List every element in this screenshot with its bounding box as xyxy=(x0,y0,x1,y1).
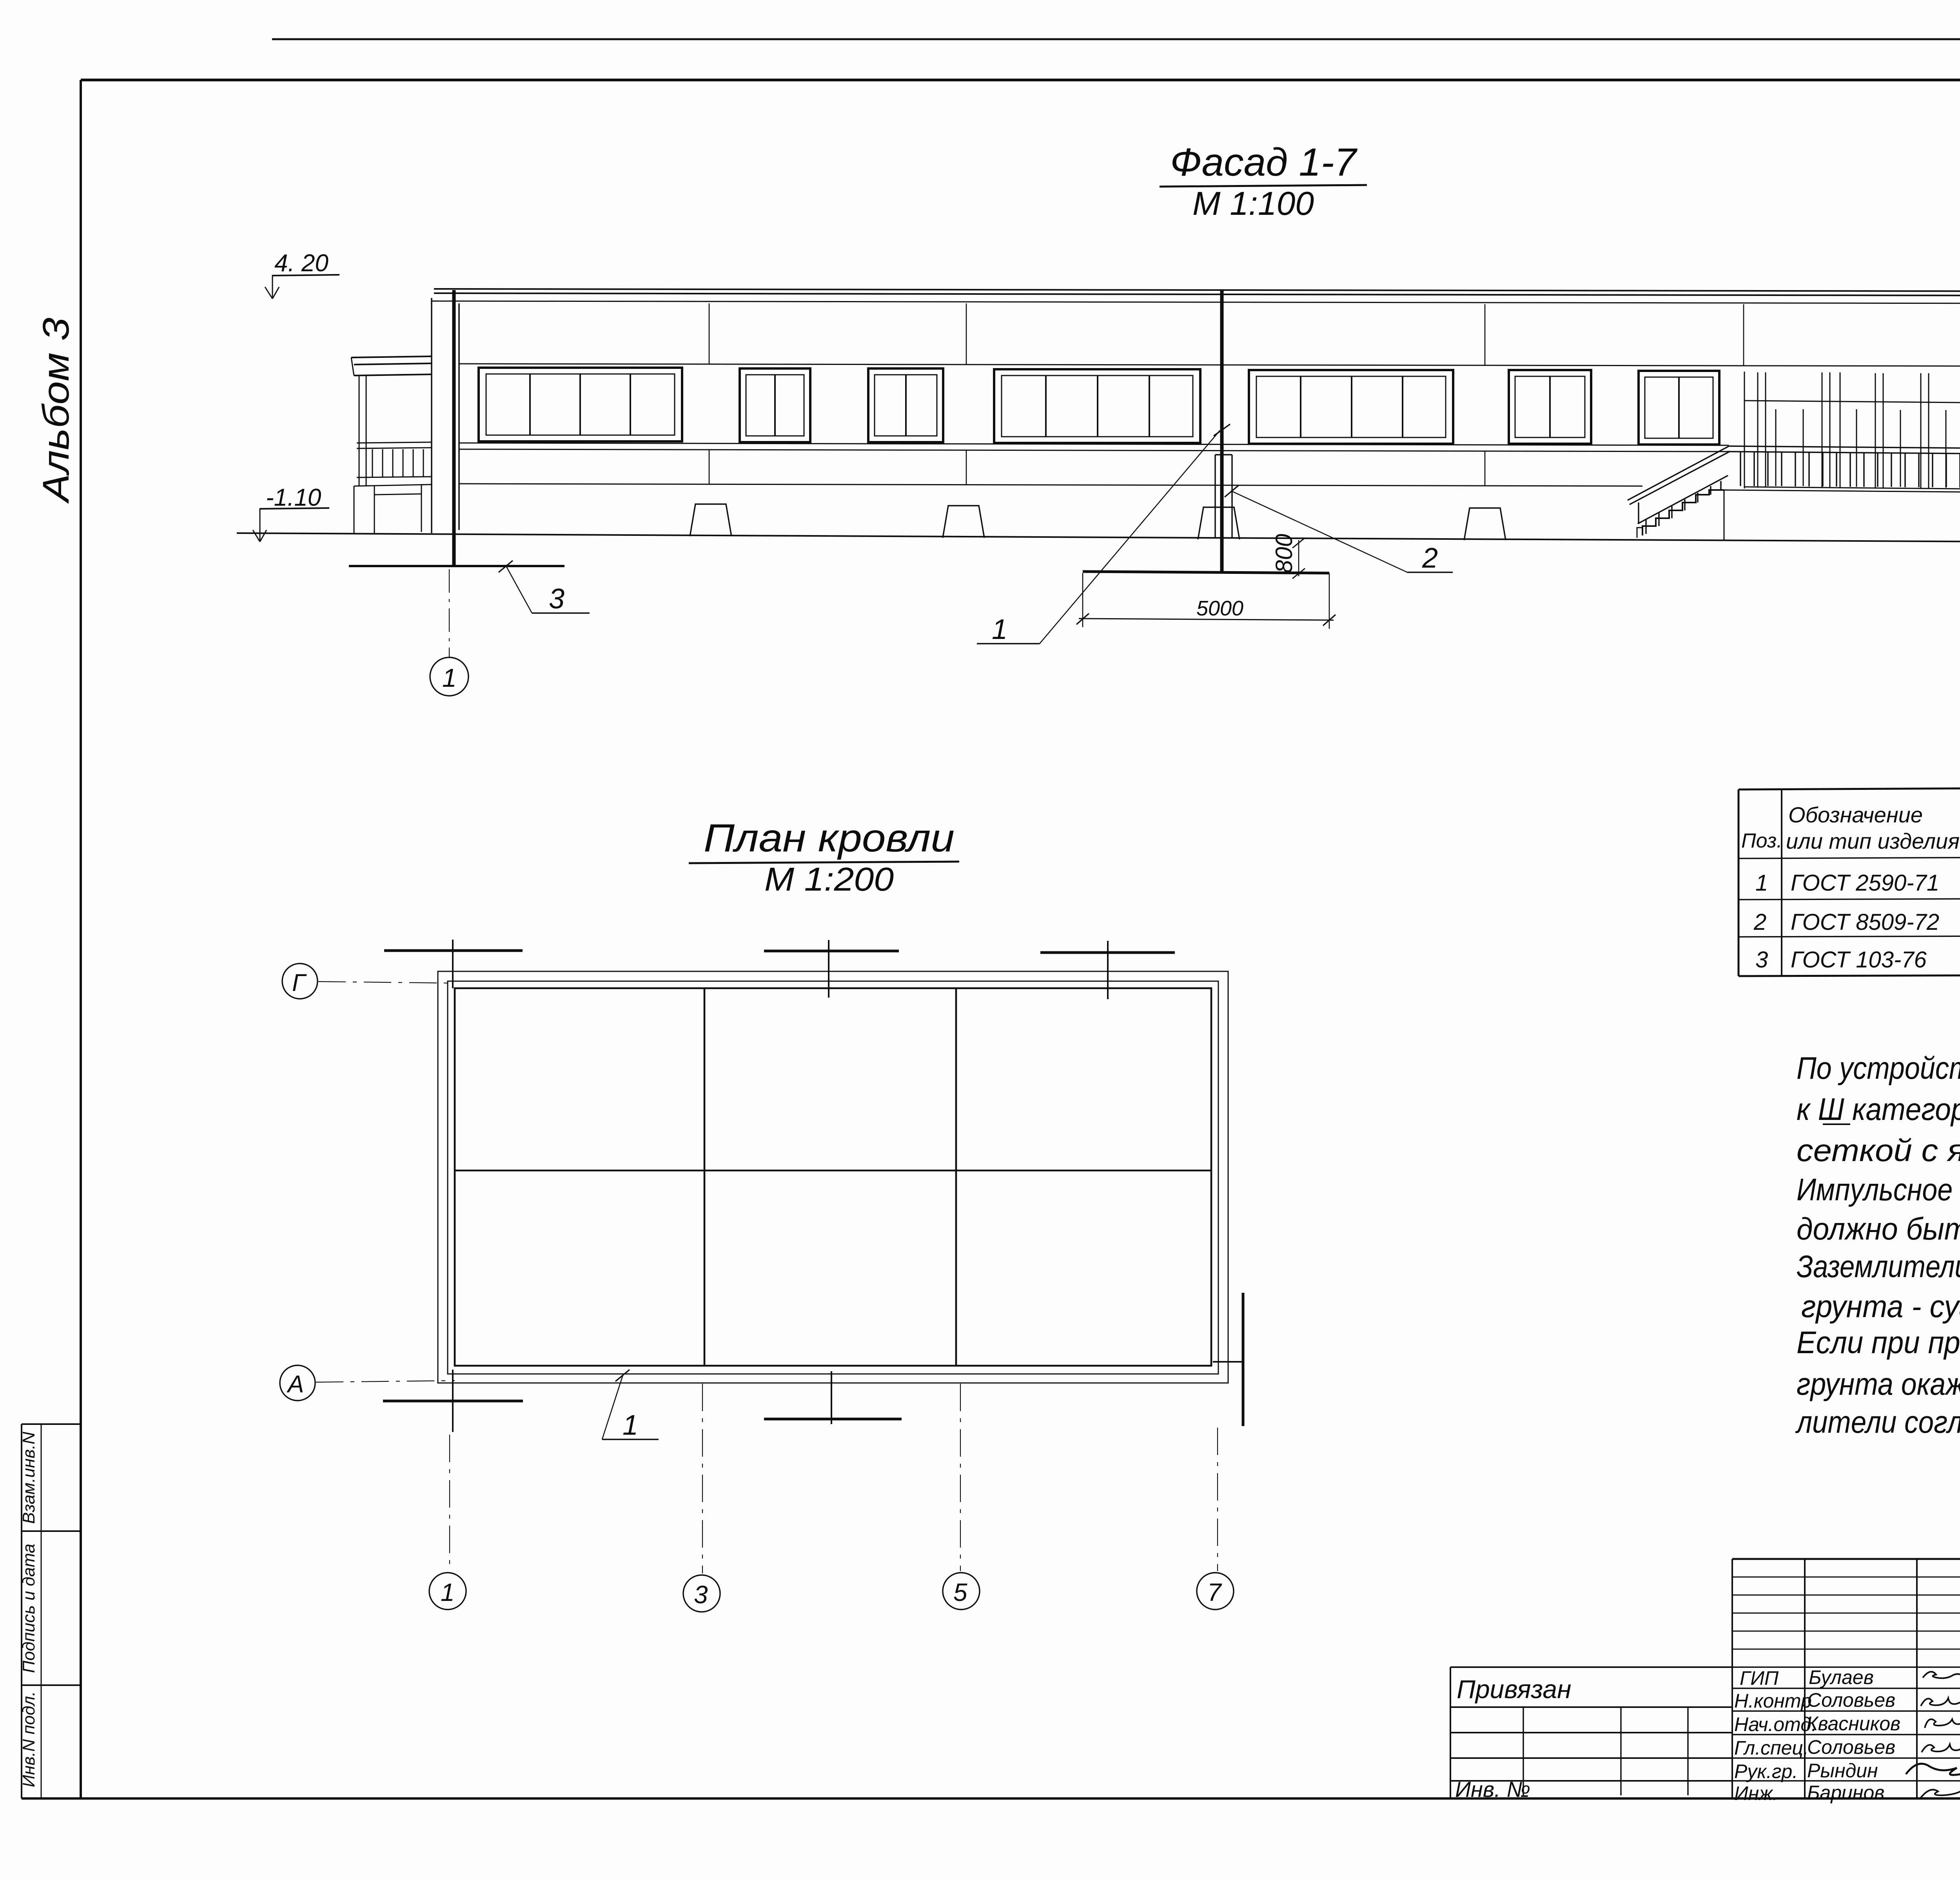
svg-text:Если при привязке удельное: Если при привязке удельное сопротивление xyxy=(1797,1325,1960,1360)
svg-text:7: 7 xyxy=(1207,1578,1222,1606)
svg-text:2: 2 xyxy=(1753,909,1766,935)
svg-text:3: 3 xyxy=(549,583,564,615)
svg-text:1: 1 xyxy=(441,1578,455,1606)
svg-text:По устройству молниезащиты з: По устройству молниезащиты здание относи… xyxy=(1797,1051,1960,1085)
svg-text:ГОСТ 103-76: ГОСТ 103-76 xyxy=(1791,947,1927,973)
svg-text:Взам.инв.N: Взам.инв.N xyxy=(19,1432,38,1524)
svg-text:Импульсное сопротивление каж: Импульсное сопротивление каждого заземли… xyxy=(1797,1172,1960,1207)
svg-text:ГОСТ 8509-72: ГОСТ 8509-72 xyxy=(1791,909,1939,935)
svg-text:Рындин: Рындин xyxy=(1807,1760,1878,1782)
svg-text:Нач.отд.: Нач.отд. xyxy=(1734,1713,1817,1735)
svg-text:3: 3 xyxy=(1755,947,1768,973)
svg-text:2: 2 xyxy=(1422,543,1438,574)
svg-text:Булаев: Булаев xyxy=(1809,1666,1874,1688)
svg-text:или тип изделия: или тип изделия xyxy=(1786,829,1960,853)
svg-text:грунта - суглинок. ρ = 1.104: грунта - суглинок. ρ = 1.104 ом.см. xyxy=(1801,1289,1960,1324)
svg-text:Альбом 3: Альбом 3 xyxy=(35,318,77,504)
svg-text:ГОСТ 2590-71: ГОСТ 2590-71 xyxy=(1791,870,1939,896)
svg-text:5: 5 xyxy=(953,1578,967,1606)
svg-text:М 1:200: М 1:200 xyxy=(764,861,894,898)
svg-text:сеткой с ячейками 9×12м.: сеткой с ячейками 9×12м. xyxy=(1797,1133,1960,1168)
svg-text:Инв.N подл.: Инв.N подл. xyxy=(19,1691,38,1787)
svg-text:лители согласно СН.: лители согласно СН. xyxy=(1795,1405,1960,1439)
svg-text:Заземлители выбраны условно: Заземлители выбраны условно для xyxy=(1797,1249,1960,1284)
svg-text:1: 1 xyxy=(992,614,1007,645)
svg-text:1: 1 xyxy=(1755,870,1768,896)
svg-text:Фасад 1-7: Фасад 1-7 xyxy=(1170,140,1357,184)
svg-text:ГИП: ГИП xyxy=(1740,1667,1779,1689)
svg-text:800: 800 xyxy=(1271,534,1297,573)
svg-text:3: 3 xyxy=(694,1581,708,1609)
svg-text:Рук.гр.: Рук.гр. xyxy=(1734,1760,1798,1782)
svg-text:Подпись и дата: Подпись и дата xyxy=(19,1544,38,1673)
svg-text:Н.контр: Н.контр xyxy=(1734,1690,1812,1712)
svg-text:План кровли: План кровли xyxy=(704,816,955,860)
svg-text:к Ш категории и защищается: к Ш категории и защищается молниеприемно… xyxy=(1797,1092,1960,1127)
svg-text:Г: Г xyxy=(292,969,307,996)
svg-text:5000: 5000 xyxy=(1196,597,1243,620)
svg-text:-1.10: -1.10 xyxy=(266,484,321,511)
svg-text:А: А xyxy=(286,1371,304,1398)
svg-text:1: 1 xyxy=(622,1410,638,1441)
svg-text:4. 20: 4. 20 xyxy=(274,250,328,277)
svg-text:Поз.: Поз. xyxy=(1741,829,1782,852)
svg-text:Обозначение: Обозначение xyxy=(1788,802,1923,827)
svg-text:Баринов: Баринов xyxy=(1807,1782,1884,1804)
svg-text:Инв. №: Инв. № xyxy=(1455,1777,1530,1802)
svg-text:М 1:100: М 1:100 xyxy=(1192,185,1314,222)
svg-text:Инж.: Инж. xyxy=(1734,1782,1778,1804)
svg-text:1: 1 xyxy=(442,663,457,692)
svg-text:Соловьев: Соловьев xyxy=(1807,1689,1895,1711)
svg-text:грунта окажется иным, то вы: грунта окажется иным, то выбрать зазем. xyxy=(1797,1366,1960,1401)
svg-text:Квасников: Квасников xyxy=(1806,1713,1900,1735)
svg-text:Соловьев: Соловьев xyxy=(1807,1736,1895,1758)
svg-text:Гл.спец.: Гл.спец. xyxy=(1734,1737,1809,1759)
svg-text:Привязан: Привязан xyxy=(1457,1675,1571,1704)
svg-text:должно быть не более 200м.: должно быть не более 200м. xyxy=(1797,1211,1960,1246)
